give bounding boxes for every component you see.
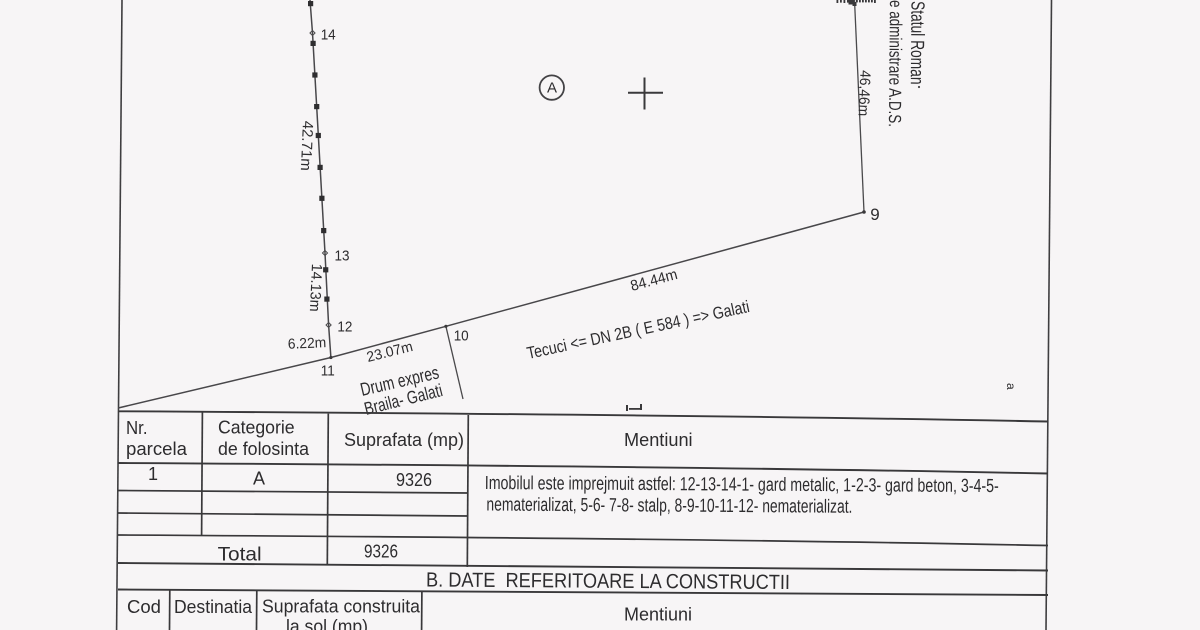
svg-text:Suprafata (mp): Suprafata (mp) bbox=[344, 429, 464, 450]
svg-text:Cod: Cod bbox=[127, 596, 161, 617]
svg-text:a: a bbox=[1004, 383, 1018, 390]
svg-text:Nr.: Nr. bbox=[126, 417, 148, 438]
svg-text:Mentiuni: Mentiuni bbox=[624, 429, 693, 450]
svg-text:Categorie: Categorie bbox=[218, 417, 295, 438]
svg-text:A: A bbox=[253, 469, 265, 489]
svg-text:11: 11 bbox=[321, 363, 335, 380]
svg-text:12: 12 bbox=[337, 319, 352, 336]
svg-text:6.22m: 6.22m bbox=[287, 335, 326, 353]
svg-text:14.13m: 14.13m bbox=[306, 263, 325, 312]
svg-text:nematerializat, 5-6- 7-8- stal: nematerializat, 5-6- 7-8- stalp, 8-9-10-… bbox=[486, 495, 852, 518]
svg-text:13: 13 bbox=[335, 248, 350, 265]
svg-text:de folosinta: de folosinta bbox=[218, 438, 310, 459]
svg-text:14: 14 bbox=[321, 26, 336, 43]
svg-text:A: A bbox=[547, 79, 557, 96]
svg-text:10: 10 bbox=[454, 328, 469, 345]
svg-text:Statul Roman: Statul Roman bbox=[906, 1, 928, 85]
svg-text:Imobilul este imprejmuit astfe: Imobilul este imprejmuit astfel: 12-13-1… bbox=[485, 473, 999, 497]
svg-text:Mentiuni: Mentiuni bbox=[624, 604, 692, 625]
svg-text:9326: 9326 bbox=[396, 470, 432, 490]
svg-text:la sol (mp): la sol (mp) bbox=[286, 616, 368, 630]
svg-text:e administrare A.D.S.: e administrare A.D.S. bbox=[885, 0, 906, 127]
svg-text:46,46m: 46,46m bbox=[854, 70, 873, 117]
svg-text:1: 1 bbox=[148, 464, 158, 484]
svg-text:Suprafata construita: Suprafata construita bbox=[262, 596, 421, 617]
svg-text:Destinatia: Destinatia bbox=[174, 596, 253, 617]
svg-text:42.71m: 42.71m bbox=[297, 120, 316, 171]
svg-text:parcela: parcela bbox=[126, 438, 188, 459]
svg-text:Total: Total bbox=[218, 545, 262, 566]
svg-text:9326: 9326 bbox=[364, 542, 398, 562]
svg-text:9: 9 bbox=[870, 205, 879, 224]
svg-text:B. DATE REFERITOARE LA CONSTR: B. DATE REFERITOARE LA CONSTRUCTII bbox=[426, 569, 790, 595]
